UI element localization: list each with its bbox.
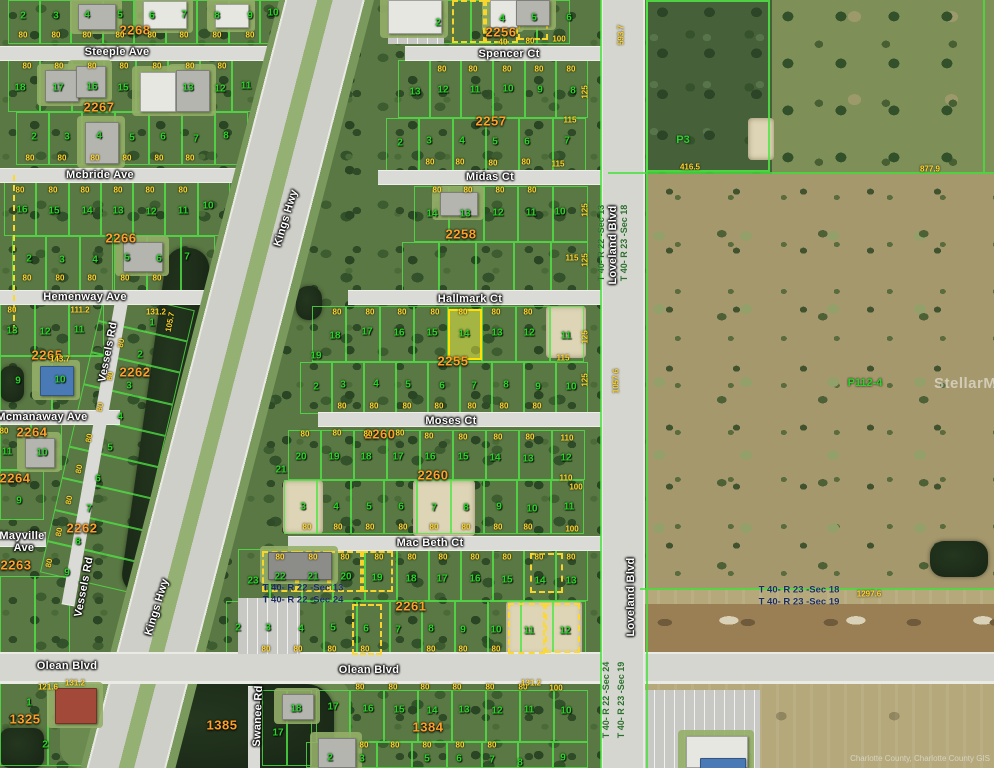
pond: [930, 541, 988, 577]
street-label: Loveland Blvd: [607, 205, 619, 284]
lot-number: 1: [149, 318, 155, 329]
dimension-label: 80: [148, 31, 157, 40]
lot-number: 11: [524, 626, 535, 637]
dimension-label: 80: [155, 154, 164, 163]
dimension-label: 80: [567, 65, 576, 74]
dimension-label: 125: [581, 373, 590, 386]
lot-number: 14: [458, 329, 469, 340]
dimension-label: 416.5: [680, 163, 700, 172]
dimension-label: 80: [19, 31, 28, 40]
street-label: Spencer Ct: [478, 48, 539, 60]
dimension-label: 80: [153, 62, 162, 71]
lot-number: 4: [373, 379, 379, 390]
copyright-text: Charlotte County, Charlotte County GIS: [850, 754, 990, 763]
street-label: Mayville: [0, 530, 45, 542]
dimension-label: 80: [567, 553, 576, 562]
lot-number: 9: [560, 753, 566, 764]
dimension-label: 100: [565, 525, 578, 534]
dimension-label: 115: [557, 354, 570, 363]
lot-number: 13: [182, 83, 193, 94]
lot-number: 8: [75, 537, 81, 548]
lot-number: 12: [145, 207, 156, 218]
lot-number: 10: [36, 448, 47, 459]
lot-number: 15: [501, 575, 512, 586]
lot-number: 2: [435, 18, 441, 29]
dimension-label: 593.7: [617, 25, 626, 45]
lot-number: 17: [52, 83, 63, 94]
dimension-label: 80: [303, 523, 312, 532]
lot-number: 5: [129, 133, 135, 144]
street-label: Loveland Blvd: [625, 557, 637, 636]
lot-number: 18: [329, 331, 340, 342]
lot-number: 21: [275, 465, 286, 476]
dimension-label: 100: [569, 483, 582, 492]
lot-number: 3: [64, 132, 70, 143]
dimension-label: 115: [566, 254, 579, 263]
parcel-grid: [0, 576, 70, 656]
dimension-label: 80: [91, 154, 100, 163]
lot-number: 5: [492, 137, 498, 148]
lot-number: 5: [117, 10, 123, 21]
lot-number: 2: [20, 11, 26, 22]
dimension-label: 80: [83, 31, 92, 40]
dimension-label: 80: [276, 553, 285, 562]
dimension-label: 80: [105, 371, 116, 381]
street-label: Swanee Rd: [251, 685, 265, 747]
dimension-label: 40: [499, 38, 508, 47]
dimension-label: 80: [146, 186, 155, 195]
parcel-cell: [402, 242, 439, 294]
lot-number: 9: [16, 496, 22, 507]
lot-number: 14: [81, 206, 92, 217]
lot-number: 10: [490, 625, 501, 636]
lot-number: 3: [340, 380, 346, 391]
dimension-label: 80: [524, 523, 533, 532]
lot-number: 8: [463, 503, 469, 514]
lot-number: 4: [117, 412, 123, 423]
dimension-label: 80: [391, 741, 400, 750]
dimension-label: 80: [496, 186, 505, 195]
dimension-label: 80: [431, 308, 440, 317]
lot-number: 10: [565, 382, 576, 393]
dimension-label: 80: [23, 274, 32, 283]
dimension-label: 80: [494, 523, 503, 532]
section-label: T 40- R 22 -Sec 13: [263, 583, 344, 594]
lot-number: 11: [2, 447, 13, 458]
dimension-label: 80: [26, 154, 35, 163]
lot-number: 4: [333, 502, 339, 513]
dimension-label: 80: [471, 553, 480, 562]
terrain-ne-woods: [772, 0, 994, 174]
dimension-label: 110: [561, 434, 574, 443]
dimension-label: 131.2: [146, 308, 166, 317]
dimension-label: 80: [389, 683, 398, 692]
parcel-id-label: P112-4: [848, 377, 883, 389]
lot-number: 8: [517, 758, 523, 768]
dimension-label: 80: [328, 645, 337, 654]
lot-number: 6: [398, 502, 404, 513]
lot-number: 12: [523, 328, 534, 339]
lot-number: 14: [426, 706, 437, 717]
lot-number: 17: [327, 702, 338, 713]
building: [318, 738, 356, 768]
lot-number: 12: [491, 706, 502, 717]
dimension-label: 80: [535, 553, 544, 562]
dimension-label: 80: [55, 62, 64, 71]
dimension-label: 80: [459, 308, 468, 317]
lot-number: 17: [272, 728, 283, 739]
lot-number: 13: [565, 576, 576, 587]
aerial-map: Steeple AveMcbride AveHemenway AveMcmana…: [0, 0, 994, 768]
lot-number: 10: [560, 706, 571, 717]
lot-number: 5: [330, 623, 336, 634]
lot-number: 6: [363, 624, 369, 635]
lot-number: 11: [470, 85, 481, 96]
dimension-label: 80: [95, 402, 106, 412]
dimension-label: 80: [427, 645, 436, 654]
lot-number: 17: [436, 574, 447, 585]
dimension-label: 80: [58, 154, 67, 163]
dimension-label: 80: [459, 433, 468, 442]
lot-number: 14: [489, 453, 500, 464]
lot-number: 19: [328, 452, 339, 463]
lot-number: 20: [295, 452, 306, 463]
lot-number: 9: [535, 382, 541, 393]
dimension-label: 80: [526, 37, 535, 46]
dimension-label: 80: [294, 645, 303, 654]
lot-number: 12: [39, 327, 50, 338]
lot-number: 15: [48, 206, 59, 217]
dimension-label: 80: [398, 308, 407, 317]
dimension-label: 80: [309, 553, 318, 562]
dimension-label: 80: [23, 62, 32, 71]
lot-number: 5: [107, 443, 113, 454]
dimension-label: 80: [453, 683, 462, 692]
lot-number: 9: [496, 502, 502, 513]
dimension-label: 80: [64, 495, 75, 505]
street-label: Ave: [14, 542, 35, 554]
dimension-label: 80: [489, 159, 498, 168]
lot-number: 15: [457, 452, 468, 463]
dimension-label: 80: [116, 338, 127, 348]
dimension-label: 80: [360, 741, 369, 750]
block-label: 2264: [17, 425, 48, 440]
dimension-label: 80: [469, 65, 478, 74]
lot-number: 16: [424, 452, 435, 463]
dimension-label: 80: [186, 154, 195, 163]
street-label: Mcmanaway Ave: [0, 411, 88, 423]
dimension-label: 80: [423, 741, 432, 750]
dimension-label: 80: [123, 154, 132, 163]
lot-number: 18: [290, 704, 301, 715]
dimension-label: 80: [430, 523, 439, 532]
parcel-cell: [520, 690, 554, 742]
lot-number: 16: [393, 328, 404, 339]
lot-number: 9: [460, 625, 466, 636]
block-label: 2257: [476, 114, 507, 129]
dimension-label: 80: [433, 186, 442, 195]
parcel-cell: [419, 118, 452, 174]
dimension-label: 131.2: [65, 679, 85, 688]
dimension-label: 110: [560, 474, 573, 483]
building: [388, 0, 442, 34]
lot-number: 6: [95, 474, 101, 485]
dimension-label: 111.2: [70, 306, 89, 315]
parcel-cell: [447, 742, 482, 768]
lot-number: 3: [265, 623, 271, 634]
dimension-label: 80: [486, 683, 495, 692]
dimension-label: 80: [16, 186, 25, 195]
stellar-watermark: StellarMLS: [934, 375, 994, 392]
lot-number: 7: [471, 381, 477, 392]
lot-number: 11: [241, 81, 252, 92]
building: [140, 72, 176, 112]
dimension-label: 80: [338, 402, 347, 411]
dimension-label: 80: [462, 523, 471, 532]
dimension-label: 80: [438, 65, 447, 74]
dimension-label: 80: [528, 186, 537, 195]
lot-number: 2: [327, 753, 333, 764]
olean-blvd-road: [0, 652, 994, 684]
lot-number: 10: [267, 8, 278, 19]
dimension-label: 80: [492, 308, 501, 317]
dimension-label: 877.9: [920, 165, 940, 174]
parcel-cell: [452, 690, 486, 742]
dimension-label: 80: [464, 186, 473, 195]
lot-number: 1: [26, 698, 32, 709]
lot-number: 6: [160, 132, 166, 143]
lot-number: 13: [459, 209, 470, 220]
street-label: Hemenway Ave: [43, 291, 127, 303]
lot-number: 11: [74, 325, 85, 336]
lot-number: 11: [526, 208, 537, 219]
dimension-label: 80: [74, 464, 85, 474]
dimension-label: 80: [341, 553, 350, 562]
lot-number: 12: [214, 84, 225, 95]
lot-number: 20: [340, 572, 351, 583]
lot-number: 7: [431, 503, 437, 514]
dimension-label: 80: [356, 683, 365, 692]
dimension-label: 125: [581, 203, 590, 216]
building: [700, 758, 746, 768]
lot-number: 6: [149, 11, 155, 22]
lot-number: 3: [426, 136, 432, 147]
lot-number: 8: [214, 11, 220, 22]
dimension-label: 80: [366, 308, 375, 317]
block-label: 2262: [67, 521, 98, 536]
lot-number: 3: [53, 11, 59, 22]
lot-number: 15: [117, 83, 128, 94]
block-label: 1384: [413, 720, 444, 735]
dimension-label: 80: [399, 523, 408, 532]
dimension-label: 80: [84, 433, 95, 443]
dimension-label: 80: [361, 645, 370, 654]
lot-number: 17: [392, 452, 403, 463]
dimension-label: 80: [213, 31, 222, 40]
dimension-label: 80: [526, 433, 535, 442]
lot-number: 6: [456, 754, 462, 765]
lot-number: 10: [54, 375, 65, 386]
dimension-label: 80: [44, 558, 55, 568]
dimension-label: 80: [114, 186, 123, 195]
lot-number: 12: [559, 626, 570, 637]
block-label: 2266: [106, 231, 137, 246]
lot-number: 19: [371, 573, 382, 584]
lot-number: 4: [298, 624, 304, 635]
dimension-label: 80: [120, 62, 129, 71]
lot-number: 12: [560, 453, 571, 464]
dimension-label: 80: [500, 402, 509, 411]
lot-number: 4: [84, 10, 90, 21]
street-label: Olean Blvd: [339, 664, 399, 676]
dimension-label: 80: [468, 402, 477, 411]
lot-number: 21: [307, 572, 318, 583]
dimension-label: 80: [49, 186, 58, 195]
parcel-cell: [396, 362, 428, 414]
lot-number: 16: [16, 205, 27, 216]
street-label: Midas Ct: [466, 171, 514, 183]
dimension-label: 80: [426, 158, 435, 167]
lot-number: 14: [534, 576, 545, 587]
lot-number: 2: [137, 350, 143, 361]
street-label: Steeple Ave: [85, 46, 150, 58]
lot-number: 4: [96, 131, 102, 142]
lot-number: 8: [223, 131, 229, 142]
lot-number: 9: [15, 376, 21, 387]
lot-number: 13: [491, 328, 502, 339]
lot-number: 17: [361, 327, 372, 338]
block-label: 2262: [120, 365, 151, 380]
lot-number: 8: [503, 380, 509, 391]
dimension-label: 80: [301, 430, 310, 439]
dimension-label: 125: [581, 253, 590, 266]
dimension-label: 143.7: [50, 355, 70, 364]
dimension-label: 80: [364, 430, 373, 439]
street-label: Hallmark Ct: [438, 293, 502, 305]
section-label: T 40- R 23 -Sec 18: [619, 205, 629, 282]
lot-number: 5: [124, 253, 130, 264]
lot-number: 2: [42, 740, 48, 751]
lot-number: 9: [537, 85, 543, 96]
dimension-label: 80: [54, 527, 65, 537]
dimension-label: 100: [552, 35, 565, 44]
section-label: T 40- R 22 -Sec 24: [601, 662, 611, 739]
lot-number: 6: [156, 254, 162, 265]
lot-number: 2: [397, 138, 403, 149]
dimension-label: 125: [581, 330, 590, 343]
dimension-label: 80: [246, 31, 255, 40]
dimension-label: 80: [421, 683, 430, 692]
street-label: Mac Beth Ct: [397, 537, 464, 549]
block-label: 2258: [446, 227, 477, 242]
lot-number: 10: [526, 504, 537, 515]
lot-number: 6: [566, 13, 572, 24]
dimension-label: 80: [179, 186, 188, 195]
block-label: 2267: [84, 100, 115, 115]
section-label: T 40- R 23 -Sec 18: [759, 585, 840, 596]
lot-number: 15: [393, 705, 404, 716]
lot-number: 4: [459, 136, 465, 147]
lot-number: 4: [92, 255, 98, 266]
dimension-label: 80: [333, 308, 342, 317]
lot-number: 7: [193, 134, 199, 145]
lot-number: 16: [86, 82, 97, 93]
lot-number: 11: [178, 206, 189, 217]
section-label: T 40- R 22 -Sec 13: [596, 205, 606, 282]
dimension-label: 80: [52, 31, 61, 40]
dimension-label: 80: [524, 308, 533, 317]
parcel-grid: [402, 242, 588, 294]
section-line: [600, 0, 602, 768]
dimension-label: 80: [334, 523, 343, 532]
lot-number: 3: [359, 754, 365, 765]
parcel-cell: [551, 242, 588, 294]
lot-number: 7: [86, 504, 92, 515]
dimension-label: 80: [0, 427, 8, 436]
lot-number: 12: [437, 85, 448, 96]
parcel-cell: [514, 242, 551, 294]
dimension-label: 80: [333, 429, 342, 438]
lot-number: 16: [469, 574, 480, 585]
lot-number: 3: [59, 255, 65, 266]
block-label: 1325: [10, 712, 41, 727]
dimension-label: 80: [88, 62, 97, 71]
block-label: 2260: [418, 468, 449, 483]
lot-number: 7: [181, 10, 187, 21]
lot-number: 5: [366, 502, 372, 513]
street-label: Olean Blvd: [37, 660, 97, 672]
lot-number: 18: [405, 574, 416, 585]
lot-number: 13: [6, 326, 17, 337]
lot-number: 19: [310, 351, 321, 362]
dimension-label: 80: [425, 432, 434, 441]
dimension-label: 80: [186, 62, 195, 71]
lot-number: 11: [524, 705, 535, 716]
dimension-label: 80: [456, 741, 465, 750]
lot-number: 7: [184, 252, 190, 263]
lot-number: 18: [360, 452, 371, 463]
street-label: Mcbride Ave: [66, 169, 134, 181]
lot-number: 2: [235, 623, 241, 634]
dimension-label: 80: [56, 274, 65, 283]
dimension-label: 80: [459, 645, 468, 654]
block-label: 2264: [0, 471, 30, 486]
dimension-label: 80: [366, 523, 375, 532]
lot-number: 13: [458, 705, 469, 716]
section-line: [983, 0, 985, 172]
dimension-label: 80: [408, 553, 417, 562]
section-label: T 40- R 23 -Sec 19: [759, 597, 840, 608]
lot-number: 3: [126, 381, 132, 392]
lot-number: 8: [428, 624, 434, 635]
dimension-label: 80: [522, 158, 531, 167]
lot-number: 13: [522, 454, 533, 465]
dimension-label: 80: [396, 429, 405, 438]
lot-number: 8: [570, 86, 576, 97]
lot-number: 11: [564, 502, 575, 513]
dimension-label: 80: [116, 31, 125, 40]
lot-number: 11: [561, 331, 572, 342]
lot-number: 3: [300, 502, 306, 513]
steeple-ave-road: [0, 46, 300, 61]
block-label: 2261: [396, 599, 427, 614]
dimension-label: 121.6: [38, 683, 58, 692]
section-label: T 40- R 22 -Sec 24: [263, 595, 344, 606]
lot-number: 9: [64, 568, 70, 579]
dimension-label: 80: [153, 274, 162, 283]
listing-parcel-outline: [452, 0, 485, 43]
lot-number: 2: [26, 254, 32, 265]
